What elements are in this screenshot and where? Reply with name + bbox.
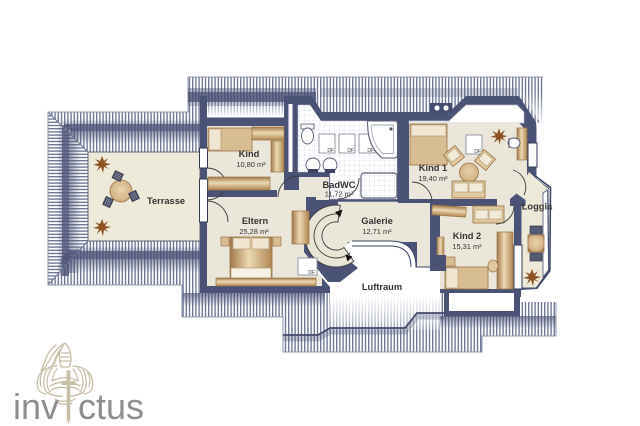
svg-text:25,28 m²: 25,28 m² bbox=[239, 227, 269, 236]
svg-text:19,40 m²: 19,40 m² bbox=[418, 174, 448, 183]
svg-text:DF: DF bbox=[327, 148, 334, 154]
svg-text:DF: DF bbox=[367, 148, 374, 154]
svg-text:Loggia: Loggia bbox=[522, 202, 553, 212]
svg-text:15,31 m²: 15,31 m² bbox=[452, 242, 482, 251]
svg-text:Terrasse: Terrasse bbox=[147, 196, 185, 206]
svg-text:DF: DF bbox=[308, 270, 315, 276]
svg-text:Kind 1: Kind 1 bbox=[419, 163, 447, 173]
svg-text:Luftraum: Luftraum bbox=[362, 282, 402, 292]
svg-text:Galerie: Galerie bbox=[361, 216, 393, 226]
svg-text:Kind: Kind bbox=[239, 149, 260, 159]
svg-text:Kind 2: Kind 2 bbox=[453, 231, 481, 241]
svg-text:10,80 m²: 10,80 m² bbox=[236, 160, 266, 169]
svg-text:ctus: ctus bbox=[78, 386, 144, 426]
svg-text:DF: DF bbox=[347, 148, 354, 154]
svg-text:inv: inv bbox=[13, 386, 59, 426]
svg-text:BadWC: BadWC bbox=[322, 180, 355, 190]
svg-text:12,71 m²: 12,71 m² bbox=[362, 227, 392, 236]
svg-text:11,72 m²: 11,72 m² bbox=[325, 190, 354, 199]
svg-text:Eltern: Eltern bbox=[242, 216, 269, 226]
